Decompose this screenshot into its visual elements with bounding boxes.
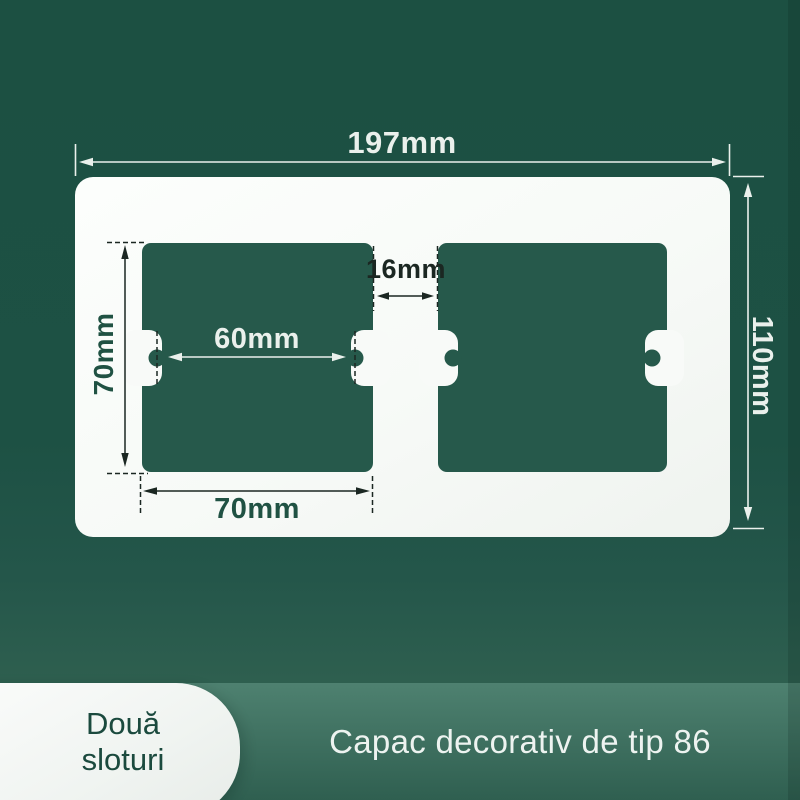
screw-knob xyxy=(445,350,462,367)
dim-label-slot-height: 70mm xyxy=(88,294,120,414)
dim-label-screw-distance: 60mm xyxy=(187,322,327,356)
product-dimension-diagram: 197mm 110mm 70mm 60mm 16mm 70mm Capac de… xyxy=(0,0,800,800)
dim-label-plate-width: 197mm xyxy=(302,125,502,161)
dim-label-slot-gap: 16mm xyxy=(346,253,466,285)
product-caption: Capac decorativ de tip 86 xyxy=(240,683,800,800)
badge-line-1: Două xyxy=(86,706,160,742)
dim-label-plate-height: 110mm xyxy=(746,306,778,426)
dim-label-slot-width: 70mm xyxy=(187,492,327,526)
screw-knob xyxy=(644,350,661,367)
right-edge-strip xyxy=(788,0,800,800)
wall-plate-diagram-canvas xyxy=(0,0,800,800)
badge-line-2: sloturi xyxy=(82,742,165,778)
slots-badge: Două sloturi xyxy=(0,683,240,800)
